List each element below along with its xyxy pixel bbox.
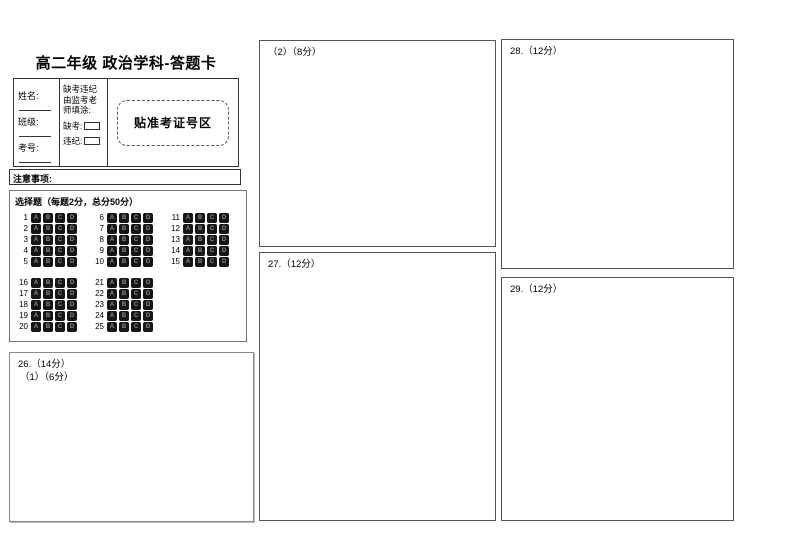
- option-bubble-14-A[interactable]: A: [183, 246, 193, 256]
- choice-row: 19ABCD24ABCD: [15, 310, 246, 321]
- option-bubble-1-D[interactable]: D: [67, 213, 77, 223]
- student-info-box: 姓名: 班级: 考号: 缺考违纪 由监考老 师填涂: 缺考: 违纪:: [13, 78, 239, 167]
- option-bubble-6-D[interactable]: D: [143, 213, 153, 223]
- exam-no-field: 考号:: [18, 141, 59, 163]
- option-bubble-3-D[interactable]: D: [67, 235, 77, 245]
- question-number: 19: [15, 311, 28, 320]
- option-bubble-18-C[interactable]: C: [55, 300, 65, 310]
- option-bubble-25-B[interactable]: B: [119, 322, 129, 332]
- option-bubble-14-C[interactable]: C: [207, 246, 217, 256]
- option-bubble-11-D[interactable]: D: [219, 213, 229, 223]
- exam-no-label: 考号:: [18, 141, 59, 154]
- question-17: 17ABCD: [15, 289, 91, 299]
- question-4: 4ABCD: [15, 246, 91, 256]
- option-bubble-5-A[interactable]: A: [31, 257, 41, 267]
- option-bubble-7-D[interactable]: D: [143, 224, 153, 234]
- option-bubble-25-D[interactable]: D: [143, 322, 153, 332]
- question-number: 3: [15, 235, 28, 244]
- option-bubble-18-B[interactable]: B: [43, 300, 53, 310]
- question-number: 16: [15, 278, 28, 287]
- question-18: 18ABCD: [15, 300, 91, 310]
- option-bubble-8-A[interactable]: A: [107, 235, 117, 245]
- option-bubble-20-C[interactable]: C: [55, 322, 65, 332]
- option-bubble-10-C[interactable]: C: [131, 257, 141, 267]
- sheet-title: 高二年级 政治学科-答题卡: [13, 52, 239, 73]
- option-bubble-21-C[interactable]: C: [131, 278, 141, 288]
- option-bubble-25-C[interactable]: C: [131, 322, 141, 332]
- question-13: 13ABCD: [167, 235, 243, 245]
- ticket-paste-cell: 贴准考证号区: [108, 79, 238, 166]
- option-bubble-11-B[interactable]: B: [195, 213, 205, 223]
- option-bubble-17-B[interactable]: B: [43, 289, 53, 299]
- option-bubble-6-B[interactable]: B: [119, 213, 129, 223]
- question-number: 1: [15, 213, 28, 222]
- option-bubble-10-B[interactable]: B: [119, 257, 129, 267]
- proctor-panel: 缺考违纪 由监考老 师填涂: 缺考: 违纪:: [60, 79, 108, 166]
- option-bubble-15-B[interactable]: B: [195, 257, 205, 267]
- option-bubble-6-A[interactable]: A: [107, 213, 117, 223]
- answer-label-26-part2: （2）（8分）: [268, 47, 495, 59]
- option-bubble-10-D[interactable]: D: [143, 257, 153, 267]
- option-bubble-7-B[interactable]: B: [119, 224, 129, 234]
- choice-row: 16ABCD21ABCD: [15, 277, 246, 288]
- answer-area-27[interactable]: 27.（12分）: [259, 252, 496, 521]
- option-bubble-11-A[interactable]: A: [183, 213, 193, 223]
- question-2: 2ABCD: [15, 224, 91, 234]
- option-bubble-15-A[interactable]: A: [183, 257, 193, 267]
- violation-row: 违纪:: [63, 136, 105, 147]
- option-bubble-12-D[interactable]: D: [219, 224, 229, 234]
- choice-row: 3ABCD8ABCD13ABCD: [15, 234, 246, 245]
- question-10: 10ABCD: [91, 257, 167, 267]
- question-22: 22ABCD: [91, 289, 167, 299]
- question-15: 15ABCD: [167, 257, 243, 267]
- option-bubble-7-C[interactable]: C: [131, 224, 141, 234]
- proctor-note-line-3: 师填涂:: [63, 105, 105, 116]
- choice-row: 1ABCD6ABCD11ABCD: [15, 212, 246, 223]
- option-bubble-24-A[interactable]: A: [107, 311, 117, 321]
- choice-block-2: 16ABCD21ABCD17ABCD22ABCD18ABCD23ABCD19AB…: [15, 277, 246, 332]
- question-21: 21ABCD: [91, 278, 167, 288]
- choice-block-1: 1ABCD6ABCD11ABCD2ABCD7ABCD12ABCD3ABCD8AB…: [15, 212, 246, 267]
- question-9: 9ABCD: [91, 246, 167, 256]
- option-bubble-13-C[interactable]: C: [207, 235, 217, 245]
- option-bubble-14-B[interactable]: B: [195, 246, 205, 256]
- option-bubble-18-D[interactable]: D: [67, 300, 77, 310]
- option-bubble-2-A[interactable]: A: [31, 224, 41, 234]
- option-bubble-19-D[interactable]: D: [67, 311, 77, 321]
- question-7: 7ABCD: [91, 224, 167, 234]
- option-bubble-17-C[interactable]: C: [55, 289, 65, 299]
- option-bubble-12-C[interactable]: C: [207, 224, 217, 234]
- class-write-line[interactable]: [19, 129, 51, 137]
- option-bubble-5-D[interactable]: D: [67, 257, 77, 267]
- option-bubble-9-D[interactable]: D: [143, 246, 153, 256]
- option-bubble-13-A[interactable]: A: [183, 235, 193, 245]
- class-field: 班级:: [18, 115, 59, 137]
- option-bubble-19-B[interactable]: B: [43, 311, 53, 321]
- option-bubble-16-D[interactable]: D: [67, 278, 77, 288]
- choice-row: 4ABCD9ABCD14ABCD: [15, 245, 246, 256]
- answer-area-29[interactable]: 29.（12分）: [501, 277, 734, 521]
- option-bubble-9-A[interactable]: A: [107, 246, 117, 256]
- option-bubble-16-B[interactable]: B: [43, 278, 53, 288]
- option-bubble-23-D[interactable]: D: [143, 300, 153, 310]
- option-bubble-21-A[interactable]: A: [107, 278, 117, 288]
- option-bubble-15-D[interactable]: D: [219, 257, 229, 267]
- option-bubble-4-D[interactable]: D: [67, 246, 77, 256]
- violation-checkbox[interactable]: [84, 137, 100, 145]
- question-number: 9: [91, 246, 104, 255]
- question-24: 24ABCD: [91, 311, 167, 321]
- option-bubble-22-C[interactable]: C: [131, 289, 141, 299]
- option-bubble-5-C[interactable]: C: [55, 257, 65, 267]
- option-bubble-22-A[interactable]: A: [107, 289, 117, 299]
- question-number: 15: [167, 257, 180, 266]
- choice-row: 2ABCD7ABCD12ABCD: [15, 223, 246, 234]
- question-number: 7: [91, 224, 104, 233]
- absent-row: 缺考:: [63, 121, 105, 132]
- option-bubble-9-B[interactable]: B: [119, 246, 129, 256]
- answer-label-26: 26.（14分）: [18, 359, 253, 371]
- option-bubble-4-C[interactable]: C: [55, 246, 65, 256]
- option-bubble-2-B[interactable]: B: [43, 224, 53, 234]
- option-bubble-19-C[interactable]: C: [55, 311, 65, 321]
- option-bubble-14-D[interactable]: D: [219, 246, 229, 256]
- choice-section-header: 选择题（每题2分，总分50分）: [15, 195, 246, 208]
- option-bubble-25-A[interactable]: A: [107, 322, 117, 332]
- question-14: 14ABCD: [167, 246, 243, 256]
- question-25: 25ABCD: [91, 322, 167, 332]
- multiple-choice-section: 选择题（每题2分，总分50分） 1ABCD6ABCD11ABCD2ABCD7AB…: [9, 190, 247, 342]
- choice-row: 17ABCD22ABCD: [15, 288, 246, 299]
- proctor-note-line-1: 缺考违纪: [63, 84, 105, 95]
- option-bubble-7-A[interactable]: A: [107, 224, 117, 234]
- option-bubble-1-B[interactable]: B: [43, 213, 53, 223]
- question-number: 13: [167, 235, 180, 244]
- option-bubble-11-C[interactable]: C: [207, 213, 217, 223]
- question-16: 16ABCD: [15, 278, 91, 288]
- question-number: 2: [15, 224, 28, 233]
- option-bubble-19-A[interactable]: A: [31, 311, 41, 321]
- choice-row: 18ABCD23ABCD: [15, 299, 246, 310]
- name-field: 姓名:: [18, 89, 59, 111]
- option-bubble-20-B[interactable]: B: [43, 322, 53, 332]
- option-bubble-21-B[interactable]: B: [119, 278, 129, 288]
- option-bubble-8-D[interactable]: D: [143, 235, 153, 245]
- name-write-line[interactable]: [19, 103, 51, 111]
- student-fields: 姓名: 班级: 考号:: [14, 79, 60, 166]
- ticket-paste-area: 贴准考证号区: [117, 100, 229, 146]
- option-bubble-17-D[interactable]: D: [67, 289, 77, 299]
- absent-label: 缺考:: [63, 121, 82, 132]
- answer-sheet: 高二年级 政治学科-答题卡 姓名: 班级: 考号: 缺考违纪 由监考老 师填涂:…: [0, 0, 794, 560]
- option-bubble-24-C[interactable]: C: [131, 311, 141, 321]
- option-bubble-6-C[interactable]: C: [131, 213, 141, 223]
- option-bubble-20-D[interactable]: D: [67, 322, 77, 332]
- option-bubble-8-C[interactable]: C: [131, 235, 141, 245]
- question-number: 24: [91, 311, 104, 320]
- option-bubble-17-A[interactable]: A: [31, 289, 41, 299]
- choice-row: 20ABCD25ABCD: [15, 321, 246, 332]
- option-bubble-12-B[interactable]: B: [195, 224, 205, 234]
- question-number: 20: [15, 322, 28, 331]
- option-bubble-10-A[interactable]: A: [107, 257, 117, 267]
- option-bubble-2-D[interactable]: D: [67, 224, 77, 234]
- question-number: 6: [91, 213, 104, 222]
- option-bubble-13-D[interactable]: D: [219, 235, 229, 245]
- option-bubble-21-D[interactable]: D: [143, 278, 153, 288]
- option-bubble-4-A[interactable]: A: [31, 246, 41, 256]
- question-23: 23ABCD: [91, 300, 167, 310]
- option-bubble-16-A[interactable]: A: [31, 278, 41, 288]
- question-20: 20ABCD: [15, 322, 91, 332]
- question-number: 21: [91, 278, 104, 287]
- question-number: 4: [15, 246, 28, 255]
- option-bubble-3-B[interactable]: B: [43, 235, 53, 245]
- question-8: 8ABCD: [91, 235, 167, 245]
- violation-label: 违纪:: [63, 136, 82, 147]
- answer-area-26[interactable]: 26.（14分） （1）（6分）: [9, 352, 254, 522]
- option-bubble-13-B[interactable]: B: [195, 235, 205, 245]
- exam-no-write-line[interactable]: [19, 155, 51, 163]
- choice-grid: 1ABCD6ABCD11ABCD2ABCD7ABCD12ABCD3ABCD8AB…: [15, 212, 246, 332]
- question-number: 25: [91, 322, 104, 331]
- question-19: 19ABCD: [15, 311, 91, 321]
- question-3: 3ABCD: [15, 235, 91, 245]
- question-number: 12: [167, 224, 180, 233]
- question-number: 22: [91, 289, 104, 298]
- option-bubble-2-C[interactable]: C: [55, 224, 65, 234]
- option-bubble-16-C[interactable]: C: [55, 278, 65, 288]
- question-number: 14: [167, 246, 180, 255]
- option-bubble-1-C[interactable]: C: [55, 213, 65, 223]
- ticket-paste-label: 贴准考证号区: [134, 114, 212, 131]
- question-number: 11: [167, 213, 180, 222]
- question-6: 6ABCD: [91, 213, 167, 223]
- answer-sublabel-26-part1: （1）（6分）: [20, 372, 253, 384]
- question-number: 8: [91, 235, 104, 244]
- notes-label: 注意事项:: [13, 174, 52, 184]
- question-number: 10: [91, 257, 104, 266]
- option-bubble-24-D[interactable]: D: [143, 311, 153, 321]
- option-bubble-23-B[interactable]: B: [119, 300, 129, 310]
- option-bubble-24-B[interactable]: B: [119, 311, 129, 321]
- answer-label-27: 27.（12分）: [268, 259, 495, 271]
- option-bubble-23-A[interactable]: A: [107, 300, 117, 310]
- absent-checkbox[interactable]: [84, 122, 100, 130]
- name-label: 姓名:: [18, 89, 59, 102]
- answer-area-26-part2[interactable]: （2）（8分）: [259, 40, 496, 247]
- option-bubble-12-A[interactable]: A: [183, 224, 193, 234]
- option-bubble-15-C[interactable]: C: [207, 257, 217, 267]
- option-bubble-9-C[interactable]: C: [131, 246, 141, 256]
- question-number: 5: [15, 257, 28, 266]
- answer-label-28: 28.（12分）: [510, 46, 733, 58]
- option-bubble-22-B[interactable]: B: [119, 289, 129, 299]
- question-number: 18: [15, 300, 28, 309]
- answer-label-29: 29.（12分）: [510, 284, 733, 296]
- question-11: 11ABCD: [167, 213, 243, 223]
- option-bubble-5-B[interactable]: B: [43, 257, 53, 267]
- question-5: 5ABCD: [15, 257, 91, 267]
- choice-row: 5ABCD10ABCD15ABCD: [15, 256, 246, 267]
- class-label: 班级:: [18, 115, 59, 128]
- question-1: 1ABCD: [15, 213, 91, 223]
- question-number: 23: [91, 300, 104, 309]
- option-bubble-4-B[interactable]: B: [43, 246, 53, 256]
- option-bubble-23-C[interactable]: C: [131, 300, 141, 310]
- option-bubble-3-A[interactable]: A: [31, 235, 41, 245]
- question-number: 17: [15, 289, 28, 298]
- proctor-note-line-2: 由监考老: [63, 95, 105, 106]
- question-12: 12ABCD: [167, 224, 243, 234]
- option-bubble-8-B[interactable]: B: [119, 235, 129, 245]
- option-bubble-1-A[interactable]: A: [31, 213, 41, 223]
- notes-bar: 注意事项:: [9, 169, 241, 185]
- option-bubble-3-C[interactable]: C: [55, 235, 65, 245]
- option-bubble-20-A[interactable]: A: [31, 322, 41, 332]
- option-bubble-18-A[interactable]: A: [31, 300, 41, 310]
- option-bubble-22-D[interactable]: D: [143, 289, 153, 299]
- answer-area-28[interactable]: 28.（12分）: [501, 39, 734, 269]
